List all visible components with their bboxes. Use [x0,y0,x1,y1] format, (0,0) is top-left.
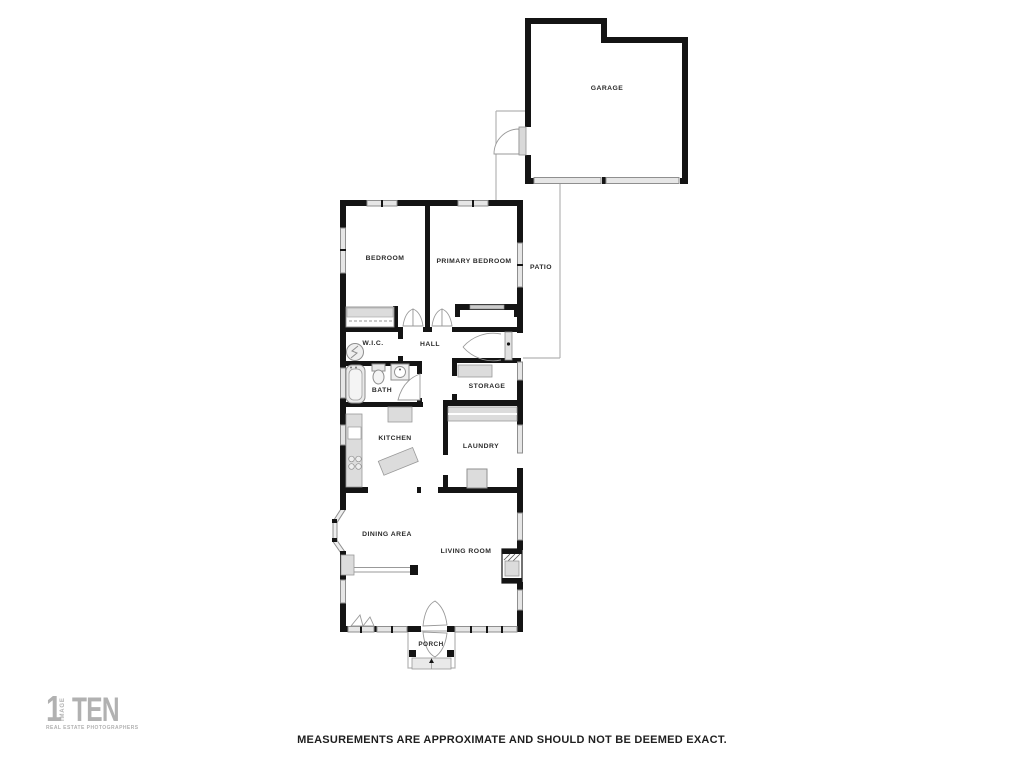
bathtub [346,365,365,403]
casement-triangles [351,615,374,626]
fireplace [502,549,522,583]
disclaimer-text: MEASUREMENTS ARE APPROXIMATE AND SHOULD … [0,734,1024,746]
room-label-hall: HALL [420,341,440,348]
primary-closet-slider [470,305,504,309]
imageten-logo: 1 IMAGE TEN REAL ESTATE PHOTOGRAPHERS [46,692,136,731]
room-label-bedroom: BEDROOM [366,255,405,262]
garage-entry-door [494,127,526,155]
garage-door [534,178,679,184]
logo-main-text: TEN [72,697,119,724]
garage-walls [525,18,688,184]
bay-window [332,504,346,557]
room-label-kitchen: KITCHEN [378,435,411,442]
room-label-dining: DINING AREA [362,531,412,538]
room-label-wic: W.I.C. [362,340,383,347]
floor-plan-page: { "rooms": { "garage": "GARAGE", "bedroo… [0,0,1024,768]
logo-vertical-text: IMAGE [36,715,66,721]
room-label-garage: GARAGE [591,85,624,92]
room-label-storage: STORAGE [469,383,506,390]
room-label-primary: PRIMARY BEDROOM [436,258,511,265]
bath-sink [391,364,409,380]
room-label-porch: PORCH [418,641,443,648]
bedroom-closet [346,307,394,327]
toilet [372,364,385,384]
storage-shelf [458,365,492,377]
room-label-bath: BATH [372,387,392,394]
kitchen-counters [346,407,418,487]
floor-plan-drawing: GARAGE BEDROOM PRIMARY BEDROOM PATIO W.I… [0,0,1024,768]
water-heater [347,344,364,361]
room-label-living: LIVING ROOM [441,548,492,555]
room-label-patio: PATIO [530,264,552,271]
dining-half-wall [341,555,418,575]
room-label-laundry: LAUNDRY [463,443,499,450]
